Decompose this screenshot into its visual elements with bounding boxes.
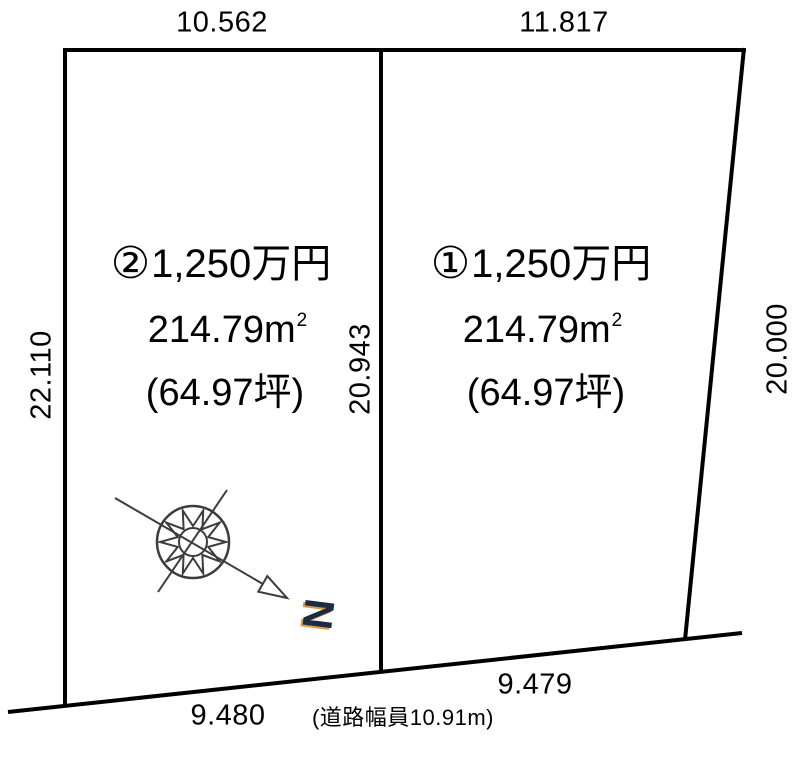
plot-2-price: 1,250万円 [151, 244, 331, 284]
compass-rose-icon [115, 490, 287, 598]
land-plot-diagram: 10.562 11.817 22.110 20.943 20.000 9.480… [0, 0, 808, 759]
dim-top-left: 10.562 [176, 9, 268, 38]
north-arrow-head-icon [258, 576, 287, 598]
plot-1-number-badge: ① [431, 242, 470, 286]
north-label: N [295, 596, 340, 631]
dim-right-side: 20.000 [764, 303, 793, 395]
plot-1-price: 1,250万円 [471, 244, 651, 284]
plot-2-area-value: 214.79m [148, 309, 296, 351]
plot-1-area-sqm: 214.79m2 [463, 311, 621, 349]
plot-outline-svg [0, 0, 808, 759]
plot-1-area-value: 214.79m [463, 309, 611, 351]
plot-2-price-line: ② 1,250万円 [111, 242, 332, 286]
plot-1-price-line: ① 1,250万円 [431, 242, 652, 286]
boundary-right-line [685, 48, 744, 640]
dim-center-divider: 20.943 [347, 323, 376, 415]
plot-2-area-sqm: 214.79m2 [148, 311, 306, 349]
road-width-note: (道路幅員10.91m) [312, 707, 494, 729]
plot-1-area-sup: 2 [612, 310, 623, 331]
dim-left-side: 22.110 [28, 330, 57, 420]
dim-top-right: 11.817 [519, 9, 609, 38]
plot-2-area-tsubo: (64.97坪) [146, 374, 304, 412]
dim-bottom-right: 9.479 [497, 671, 572, 700]
plot-2-number-badge: ② [111, 242, 150, 286]
plot-2-area-sup: 2 [297, 310, 308, 331]
road-boundary-line [8, 633, 742, 712]
plot-1-area-tsubo: (64.97坪) [467, 374, 625, 412]
dim-bottom-left: 9.480 [190, 702, 265, 731]
